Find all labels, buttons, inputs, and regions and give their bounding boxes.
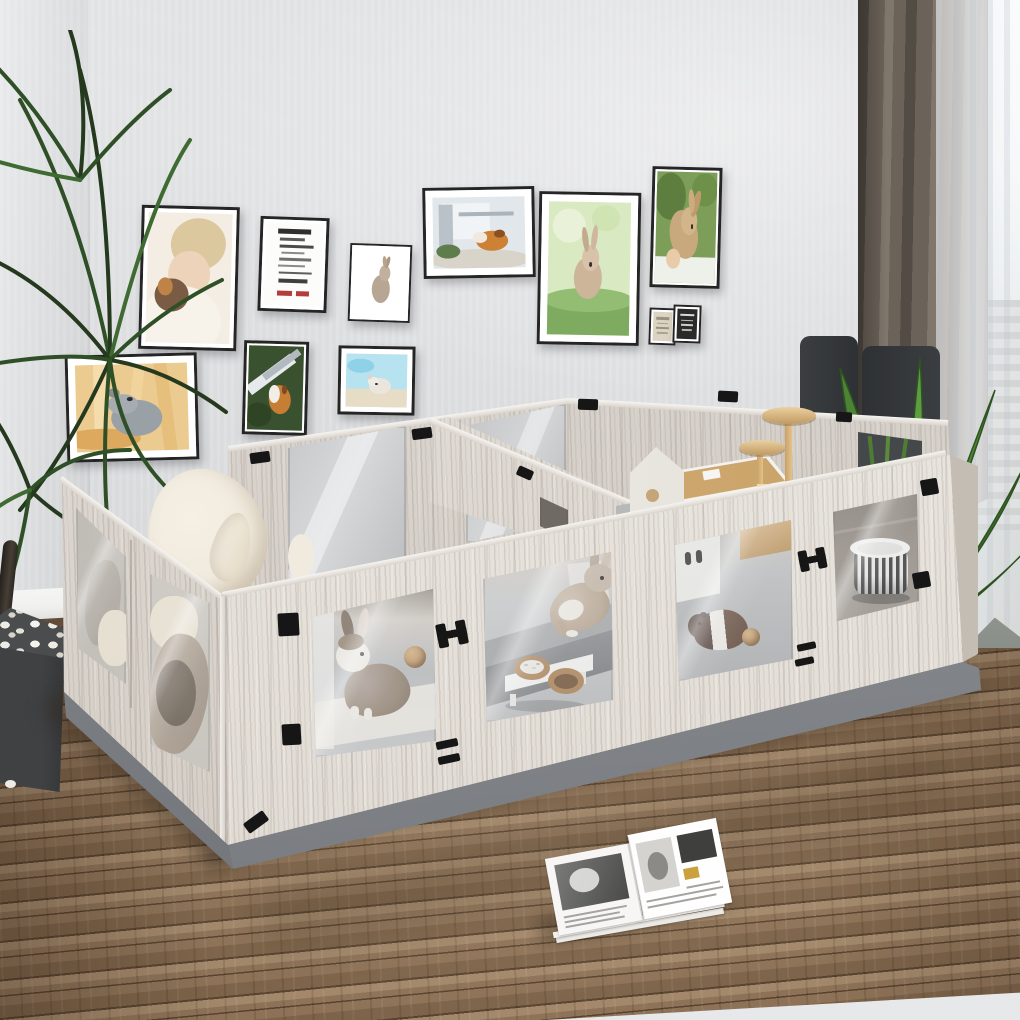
rabbit2-foot bbox=[566, 630, 578, 637]
bowl-empty-inner bbox=[554, 674, 578, 689]
guinea-pig-eye bbox=[698, 622, 701, 625]
photo-chinchilla-beach bbox=[337, 345, 415, 415]
art-patch bbox=[458, 212, 513, 217]
art-patch bbox=[279, 244, 313, 249]
panel-clip bbox=[912, 571, 932, 590]
art-patch bbox=[278, 271, 311, 275]
frame-art bbox=[346, 353, 408, 407]
guinea-pig-head bbox=[688, 614, 710, 638]
frame-art bbox=[652, 312, 672, 342]
pillow-through-window bbox=[288, 534, 314, 580]
photo-guinea-pig-windowsill bbox=[422, 186, 536, 279]
frame-mat bbox=[540, 194, 639, 343]
art-blob bbox=[382, 256, 386, 267]
art-blob bbox=[473, 232, 488, 243]
front-window-3 bbox=[675, 520, 793, 681]
art-patch bbox=[657, 323, 668, 325]
pen-left-seam bbox=[130, 540, 132, 708]
left-window-front bbox=[150, 572, 210, 772]
wicker-ball bbox=[742, 628, 760, 646]
art-patch bbox=[682, 329, 692, 331]
house-gable-hole bbox=[646, 489, 659, 502]
art-blob bbox=[347, 358, 374, 372]
shelf-line bbox=[833, 517, 918, 535]
art-patch bbox=[657, 332, 667, 334]
art-blob bbox=[590, 225, 599, 251]
poster-typography bbox=[257, 216, 329, 313]
frame-art bbox=[676, 309, 697, 340]
art-patch bbox=[656, 327, 669, 329]
frame-art bbox=[655, 171, 718, 284]
art-patch bbox=[681, 314, 694, 317]
art-blob bbox=[553, 208, 586, 243]
frame-art bbox=[356, 251, 404, 315]
art-patch bbox=[279, 237, 304, 241]
panel-clip bbox=[578, 399, 598, 411]
art-patch bbox=[681, 319, 692, 321]
art-blob bbox=[581, 226, 590, 252]
art-patch bbox=[281, 251, 304, 254]
frame-mat bbox=[260, 219, 326, 310]
art-patch bbox=[656, 317, 669, 320]
gold-accent bbox=[683, 866, 700, 880]
frame-mat bbox=[350, 245, 411, 321]
frame-mat bbox=[674, 307, 699, 342]
rabbit-front-leg bbox=[350, 706, 360, 720]
frame-art bbox=[264, 222, 324, 307]
panel-clip bbox=[718, 390, 739, 402]
pen-corner-ridge bbox=[220, 596, 225, 846]
art-patch bbox=[262, 349, 301, 381]
feeder-leg bbox=[510, 694, 516, 706]
art-patch bbox=[277, 290, 292, 295]
front-window-1 bbox=[312, 589, 436, 757]
bowl-pellets-food bbox=[520, 660, 544, 674]
front-window-4 bbox=[833, 494, 919, 621]
striped-bin-lid-inner bbox=[857, 542, 903, 555]
rabbit-front-leg bbox=[364, 708, 372, 720]
art-patch bbox=[681, 324, 693, 326]
frame-mat bbox=[650, 310, 674, 344]
house-wall-slot bbox=[696, 550, 703, 563]
tunnel-opening bbox=[156, 660, 196, 726]
panel-clip bbox=[281, 724, 301, 746]
magazine-right-page bbox=[627, 818, 732, 920]
photo-rabbit-watercolor bbox=[348, 243, 413, 323]
guinea-pig-ear bbox=[700, 612, 707, 618]
house-wall-slot bbox=[685, 552, 692, 565]
frame-art bbox=[547, 201, 631, 335]
photo-rabbit-on-grass bbox=[537, 191, 642, 346]
photo-dark bbox=[677, 829, 718, 863]
room-scene bbox=[0, 0, 1020, 1020]
cat-tree-platform-top bbox=[762, 407, 816, 424]
front-window-2 bbox=[483, 552, 613, 722]
art-patch bbox=[438, 205, 453, 248]
rabbit-eye bbox=[360, 652, 364, 656]
back-window-1 bbox=[288, 426, 406, 580]
panel-clip bbox=[836, 412, 853, 423]
art-blob bbox=[281, 386, 287, 395]
house-wall-through-window bbox=[675, 535, 720, 603]
panel-clip bbox=[920, 478, 940, 497]
art-patch bbox=[296, 291, 309, 296]
stray-pebble bbox=[5, 780, 16, 788]
art-patch bbox=[655, 257, 718, 284]
art-patch bbox=[278, 228, 311, 234]
photo-rabbit-held bbox=[649, 166, 722, 289]
rabbit2-head bbox=[584, 564, 614, 592]
art-patch bbox=[278, 264, 305, 267]
panel-clip bbox=[277, 612, 299, 636]
cat-tree-platform-mid bbox=[739, 440, 785, 455]
frame-mat bbox=[340, 348, 412, 412]
rabbit2-eye bbox=[600, 576, 604, 580]
wicker-ball bbox=[404, 646, 426, 668]
mini-print-dark bbox=[672, 305, 701, 344]
frame-mat bbox=[653, 169, 720, 286]
art-patch bbox=[279, 258, 311, 262]
frame-mat bbox=[425, 189, 532, 276]
art-patch bbox=[279, 279, 308, 283]
art-blob bbox=[494, 230, 505, 238]
frame-art bbox=[432, 196, 525, 269]
